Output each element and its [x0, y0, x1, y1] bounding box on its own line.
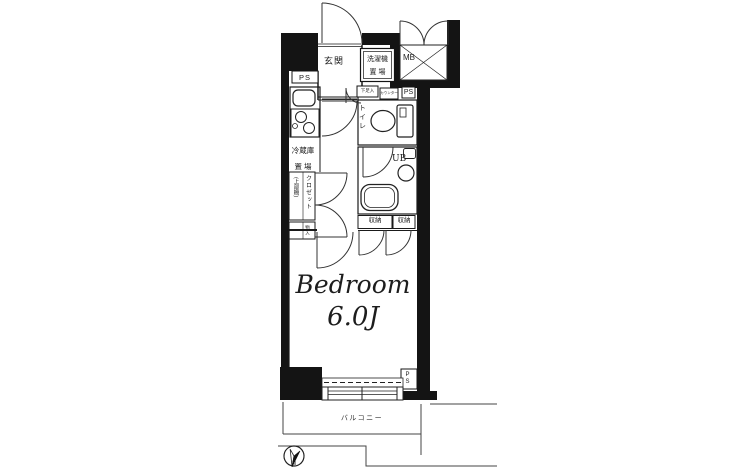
bedroom-window: [322, 378, 403, 400]
wall-left: [281, 33, 289, 367]
wall-under-mb: [390, 80, 450, 88]
kitchen-sink: [293, 90, 315, 106]
bath-door-arc: [363, 147, 393, 177]
room-label-toilet: トイレ: [359, 104, 366, 131]
entrance-door-arc: [322, 3, 362, 43]
closet-door-arc: [315, 173, 347, 205]
burner: [304, 123, 315, 134]
wall-top-bar: [362, 33, 400, 45]
washer-label-line1: 洗濯機: [360, 53, 395, 66]
kitchen-door-arc: [322, 101, 357, 136]
room-label-closet: クロゼット: [305, 175, 311, 210]
storage-door-arc: [359, 230, 384, 255]
window-jamb: [322, 387, 328, 400]
label-pipe-space-top: PS: [292, 74, 318, 82]
mb-door-arc: [400, 21, 424, 45]
balcony-outline: [278, 402, 497, 466]
wall-bottom-left-block: [280, 367, 322, 400]
storage-door-arc: [386, 230, 411, 255]
meter-box: [400, 45, 447, 80]
bedroom-size: 6.0J: [289, 304, 417, 330]
wall-right: [417, 88, 430, 400]
mb-door-arc: [424, 21, 448, 45]
label-storage-right: 収納: [393, 218, 415, 225]
room-label-fridge: 冷蔵庫 置 場: [288, 143, 318, 175]
room-label-unit-bath: UB: [392, 155, 406, 164]
room-label-entrance: 玄関: [322, 57, 346, 66]
window-jamb: [397, 387, 403, 400]
label-shoe-cupboard: 下足入: [357, 89, 378, 94]
toilet-room: [358, 100, 417, 145]
label-pipe-space-bottom: PS: [405, 372, 411, 386]
wash-basin: [398, 165, 414, 181]
label-pipe-space-mid: PS: [402, 89, 415, 96]
toilet-tank: [397, 105, 413, 137]
burner-small: [293, 124, 298, 129]
burner: [296, 112, 307, 123]
fridge-label-line2: 置 場: [288, 159, 318, 175]
bathtub-inner: [365, 188, 395, 208]
room-label-balcony: バルコニー: [312, 415, 412, 422]
toilet-bowl: [371, 111, 395, 132]
label-storage-left: 収納: [358, 218, 392, 225]
room-label-bedroom: Bedroom: [289, 272, 417, 297]
washer-label-line2: 置 場: [360, 66, 395, 79]
compass-north-label: N: [289, 462, 299, 468]
floorplan-canvas: 玄関 PS 洗濯機 置 場 MB 下足入 カウンター PS トイレ 冷蔵庫 置 …: [0, 0, 730, 470]
building-outline-step: [278, 446, 497, 466]
label-closet-lower: 物入: [305, 225, 310, 236]
bathtub: [361, 185, 398, 211]
wall-bottom-right-bar: [403, 391, 437, 400]
wall-mb-right-block: [447, 20, 460, 88]
room-label-washer: 洗濯機 置 場: [360, 53, 395, 80]
label-meter-box: MB: [400, 54, 418, 62]
toilet-flush: [400, 108, 406, 117]
label-counter: カウンター: [380, 92, 398, 96]
closet-door-arc: [315, 205, 347, 237]
fridge-label-line1: 冷蔵庫: [288, 143, 318, 159]
closet-note: (上部棚): [292, 177, 298, 197]
